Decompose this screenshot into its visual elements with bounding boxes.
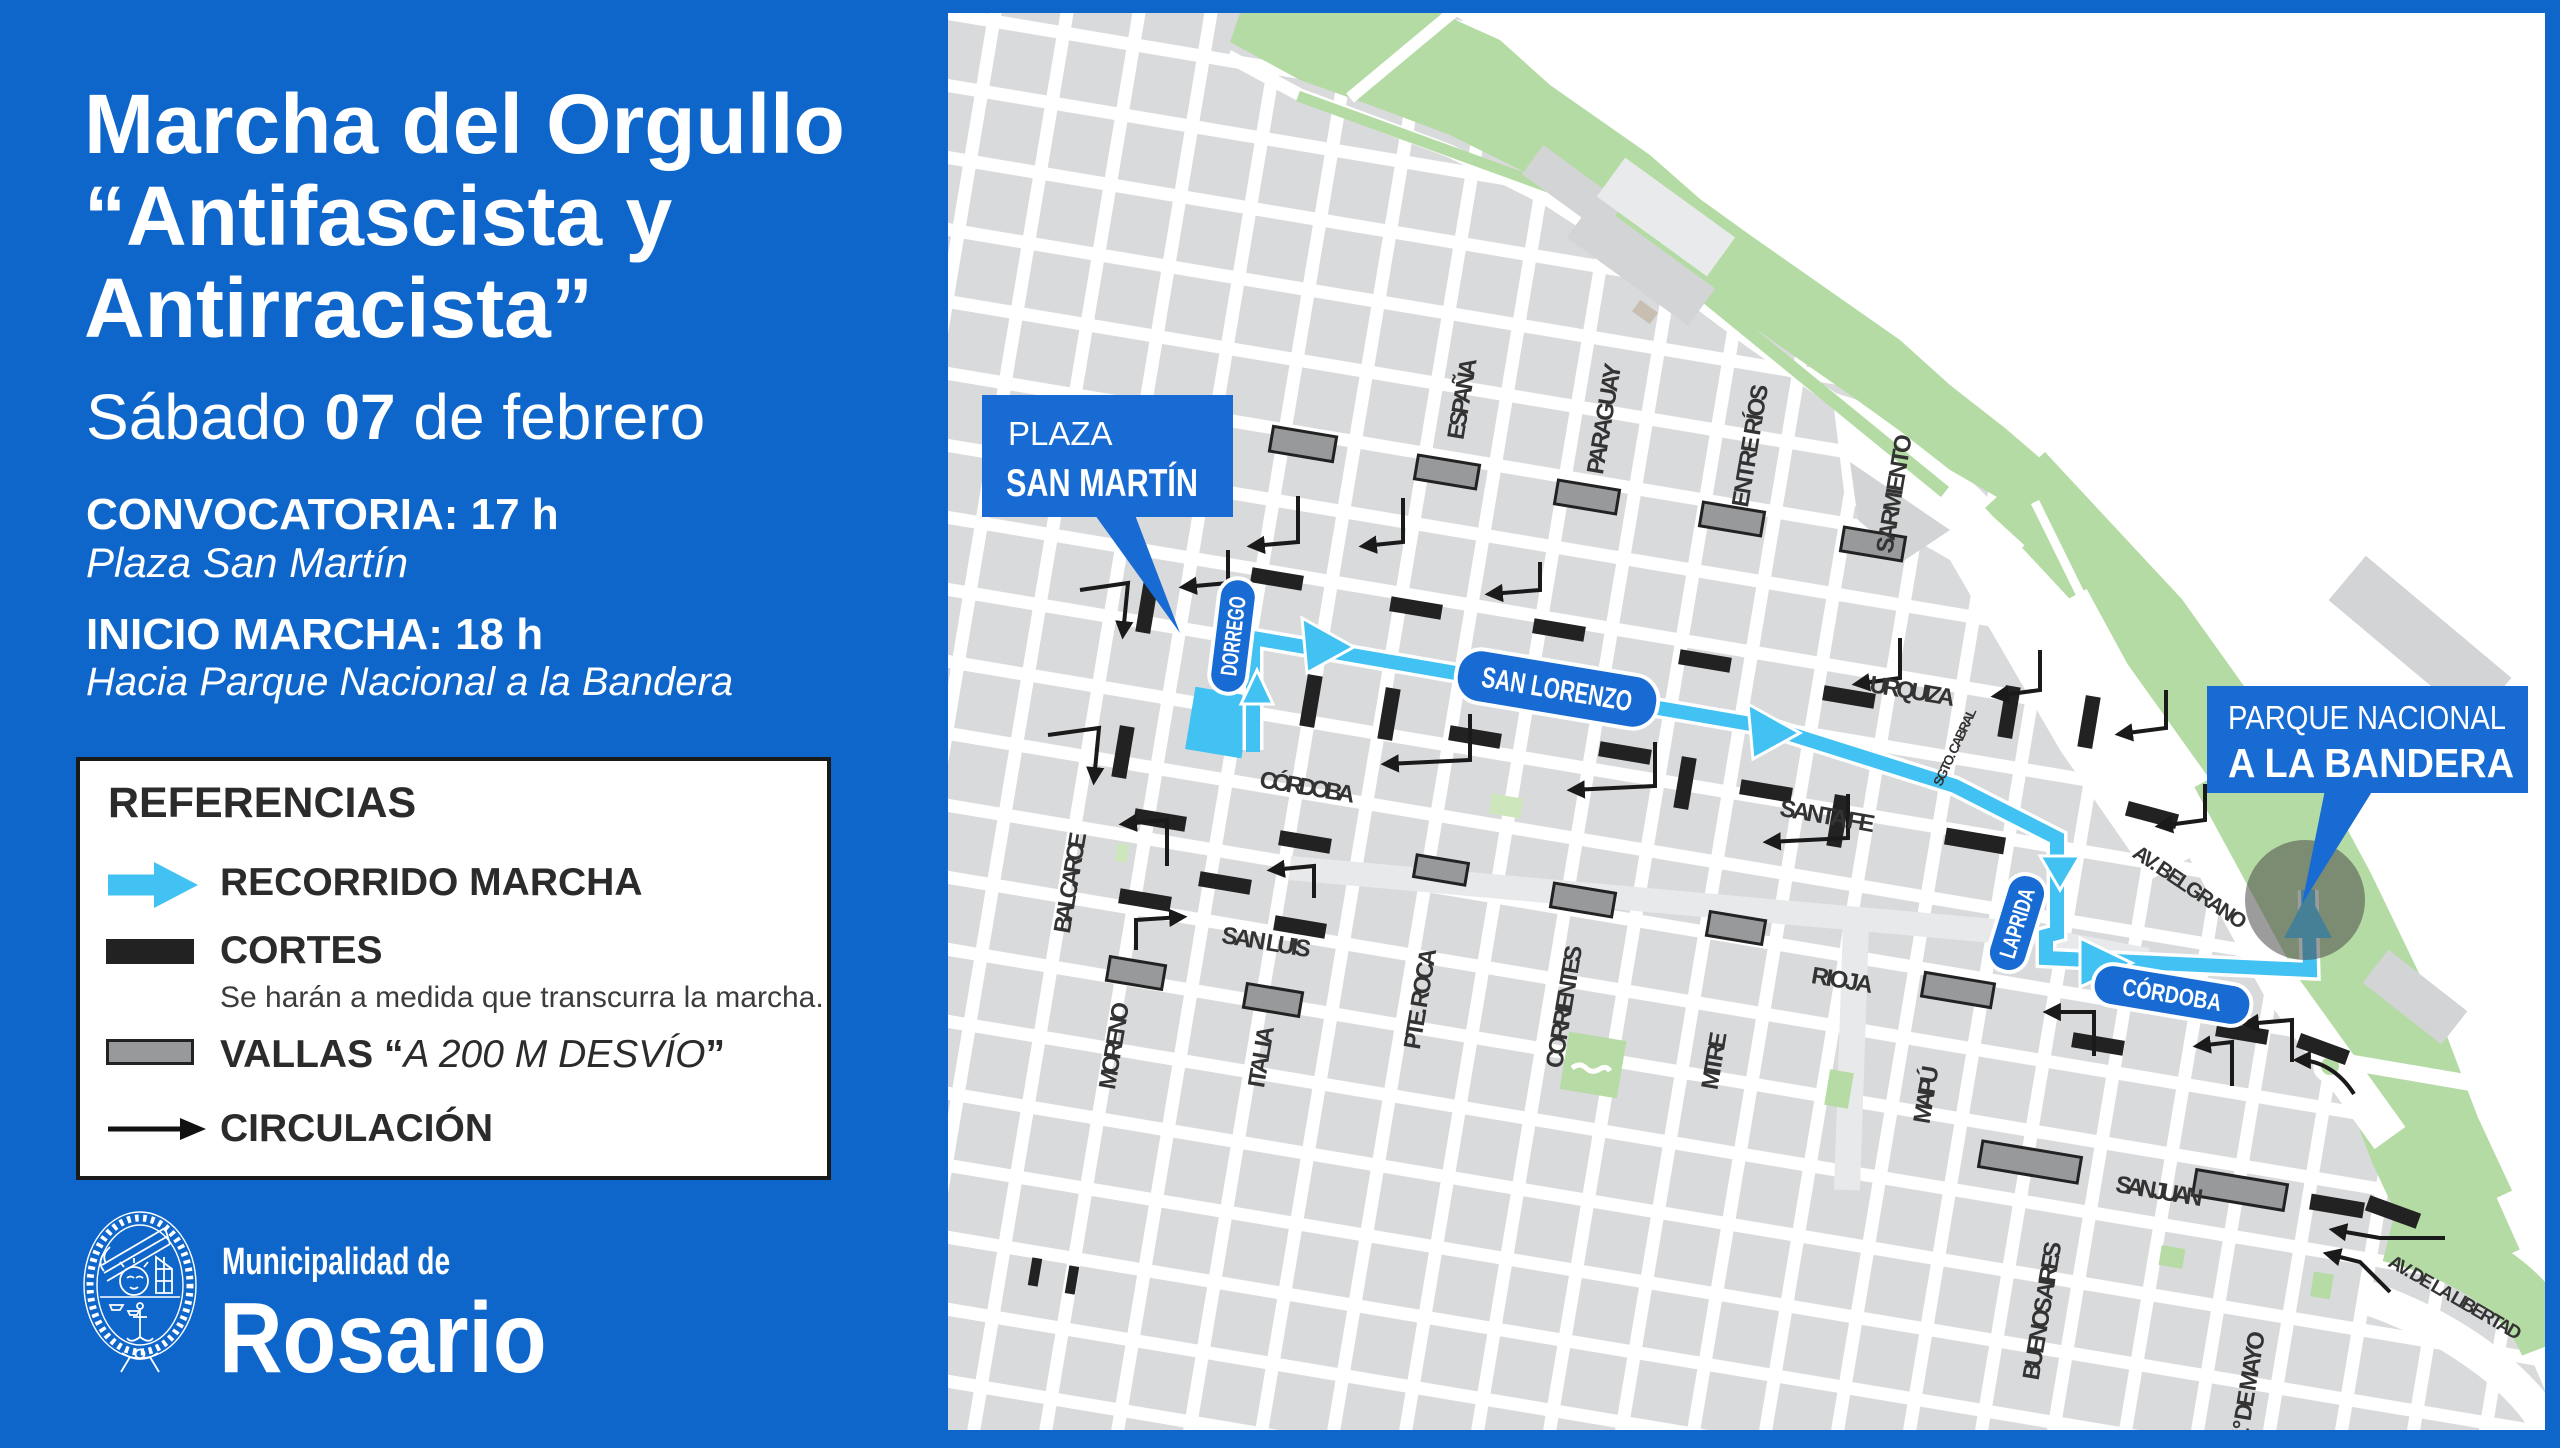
svg-text:A LA BANDERA: A LA BANDERA [2228,740,2514,786]
svg-text:PLAZA: PLAZA [1008,415,1113,452]
svg-text:SAN MARTÍN: SAN MARTÍN [1006,461,1198,505]
svg-text:PARQUE NACIONAL: PARQUE NACIONAL [2228,699,2506,736]
